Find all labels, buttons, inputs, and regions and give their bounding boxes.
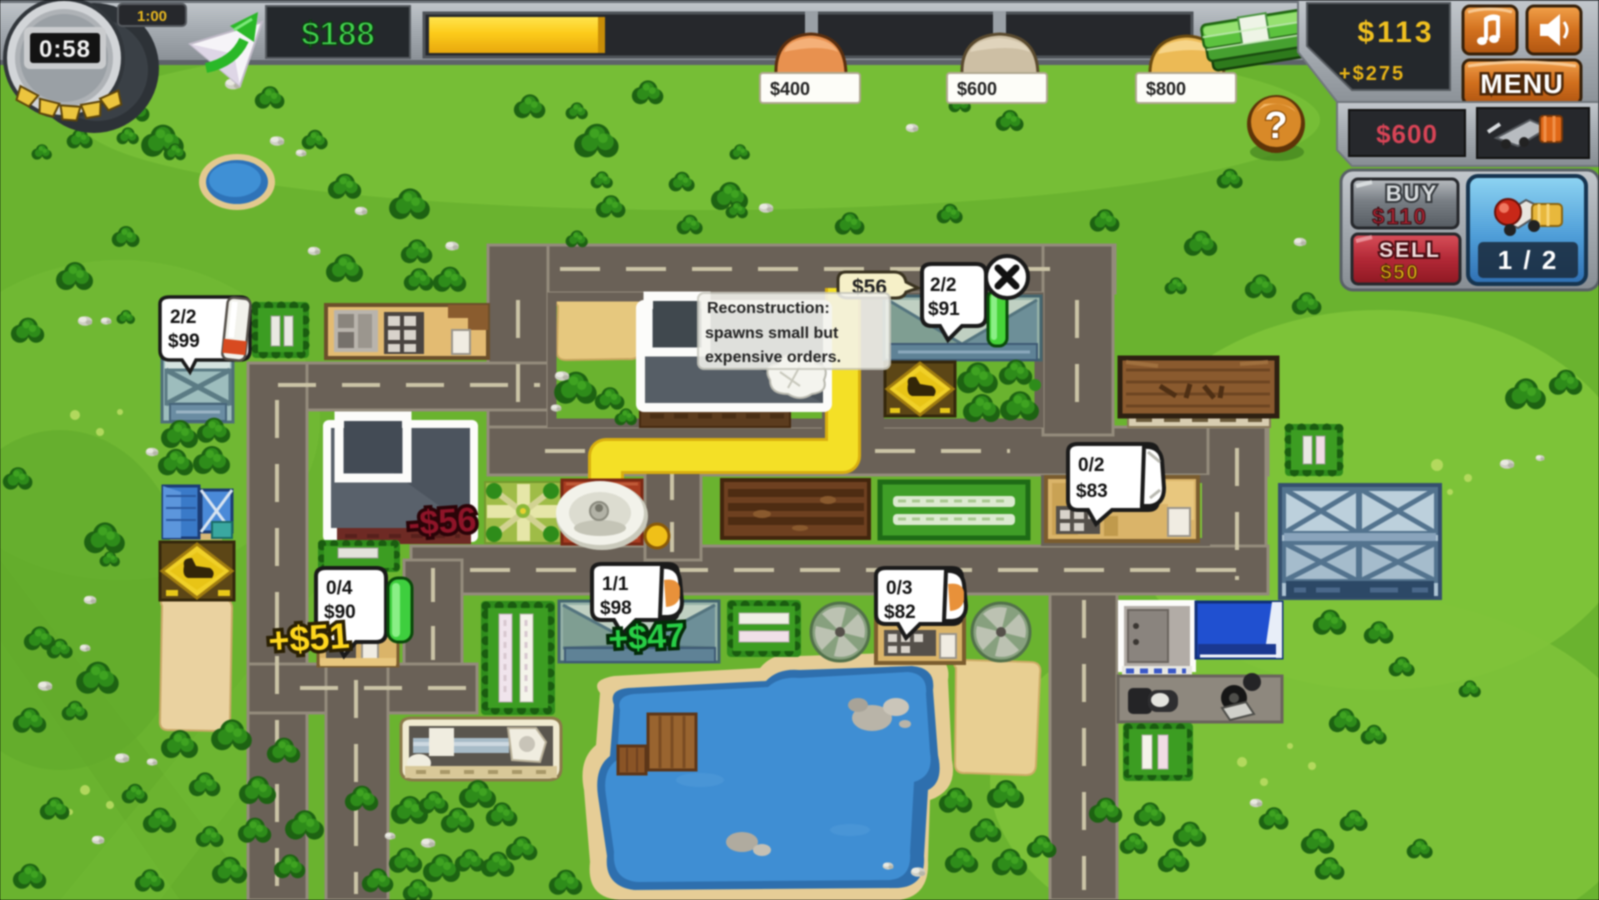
svg-text:$600: $600 — [957, 79, 997, 99]
svg-text:0/2: 0/2 — [1078, 455, 1104, 476]
svg-text:spawns small but: spawns small but — [705, 325, 839, 342]
svg-text:-$56: -$56 — [407, 501, 478, 544]
svg-text:$600: $600 — [1376, 119, 1438, 149]
svg-text:0:58: 0:58 — [39, 36, 91, 63]
svg-text:?: ? — [1264, 105, 1287, 147]
svg-text:2/2: 2/2 — [930, 275, 956, 296]
svg-text:BUY: BUY — [1386, 181, 1438, 206]
svg-text:MENU: MENU — [1480, 69, 1564, 99]
svg-text:SELL: SELL — [1379, 239, 1441, 262]
svg-text:$50: $50 — [1380, 262, 1419, 284]
svg-text:+$51: +$51 — [267, 615, 351, 662]
svg-text:$113: $113 — [1357, 16, 1434, 49]
svg-text:$98: $98 — [600, 598, 632, 619]
svg-text:$99: $99 — [168, 331, 200, 352]
svg-text:1 / 2: 1 / 2 — [1498, 245, 1559, 275]
svg-text:0/4: 0/4 — [326, 578, 353, 599]
svg-text:+$275: +$275 — [1339, 63, 1405, 85]
svg-text:0/3: 0/3 — [886, 578, 912, 599]
svg-text:Reconstruction:: Reconstruction: — [707, 300, 830, 317]
svg-text:$110: $110 — [1372, 204, 1428, 229]
svg-text:$400: $400 — [770, 79, 810, 99]
svg-text:expensive orders.: expensive orders. — [705, 349, 841, 366]
svg-text:1:00: 1:00 — [137, 8, 167, 25]
svg-text:+$47: +$47 — [607, 616, 685, 658]
svg-text:$91: $91 — [928, 299, 960, 320]
svg-text:$83: $83 — [1076, 481, 1108, 502]
svg-text:1/1: 1/1 — [602, 574, 629, 595]
svg-text:$82: $82 — [884, 602, 916, 623]
svg-text:2/2: 2/2 — [170, 307, 196, 328]
svg-text:$800: $800 — [1146, 79, 1186, 99]
svg-text:$188: $188 — [301, 15, 374, 52]
